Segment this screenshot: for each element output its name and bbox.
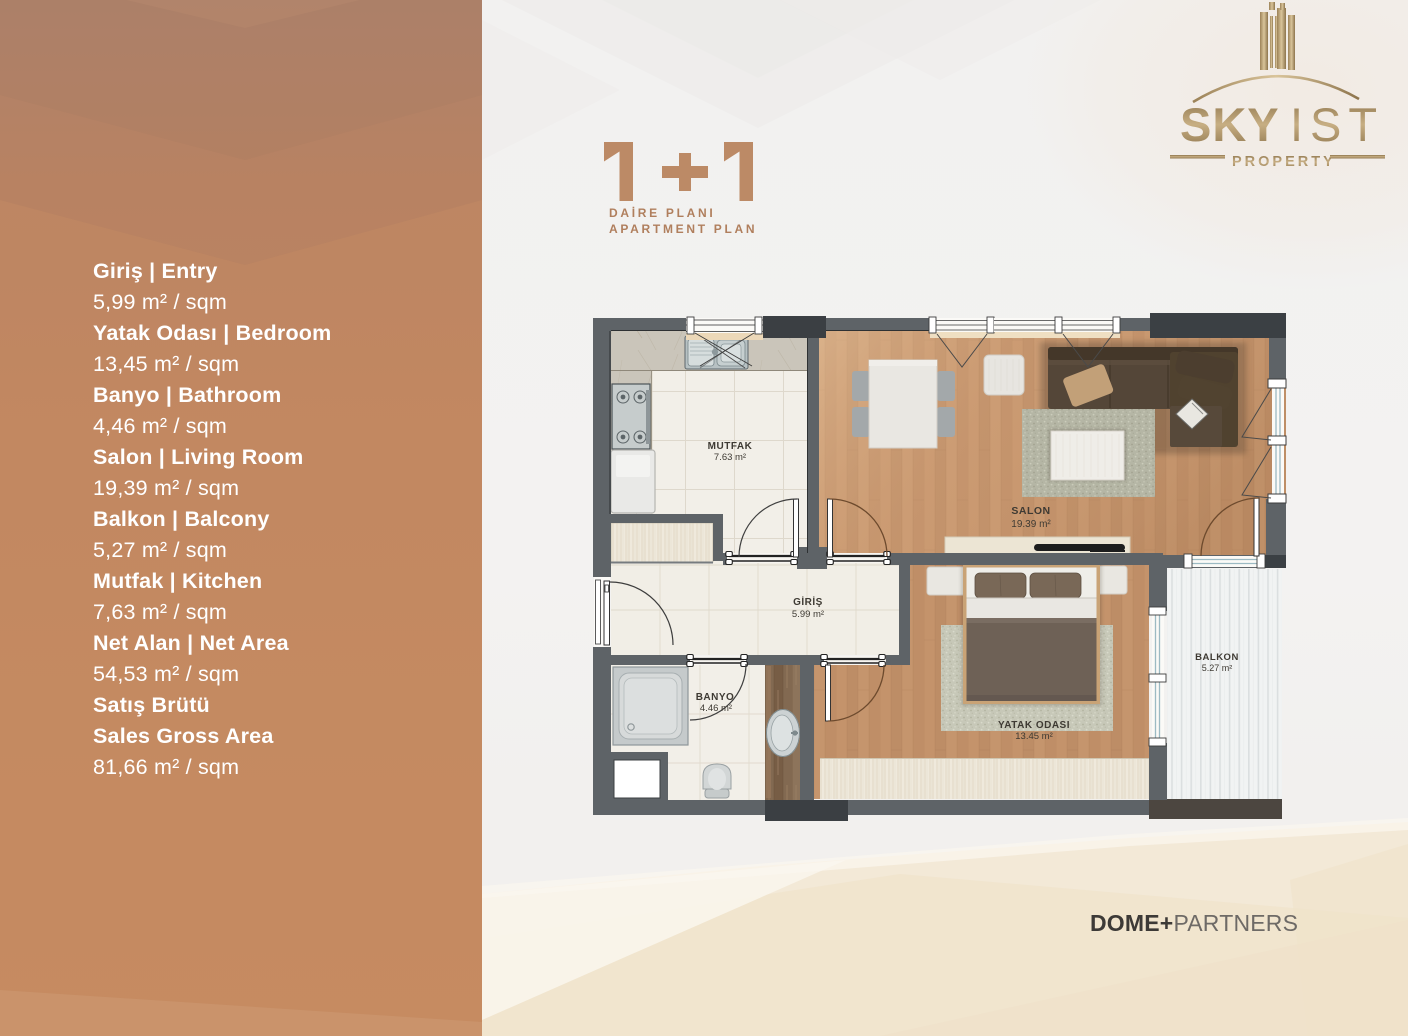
svg-text:BALKON: BALKON	[1195, 652, 1239, 663]
svg-text:GİRİŞ: GİRİŞ	[793, 595, 823, 608]
svg-text:IST: IST	[1290, 98, 1384, 151]
svg-text:5.27 m²: 5.27 m²	[1202, 663, 1233, 673]
svg-text:7.63 m²: 7.63 m²	[714, 452, 746, 463]
svg-text:SKY: SKY	[1180, 98, 1280, 151]
svg-text:13.45 m²: 13.45 m²	[1015, 731, 1053, 742]
svg-text:5.99 m²: 5.99 m²	[792, 609, 824, 620]
svg-text:YATAK ODASI: YATAK ODASI	[998, 720, 1070, 731]
svg-text:19.39 m²: 19.39 m²	[1011, 519, 1051, 530]
svg-text:SALON: SALON	[1011, 505, 1050, 517]
svg-text:MUTFAK: MUTFAK	[708, 441, 753, 452]
svg-text:PROPERTY: PROPERTY	[1232, 154, 1336, 170]
svg-text:BANYO: BANYO	[696, 692, 735, 703]
svg-text:4.46 m²: 4.46 m²	[700, 703, 732, 714]
